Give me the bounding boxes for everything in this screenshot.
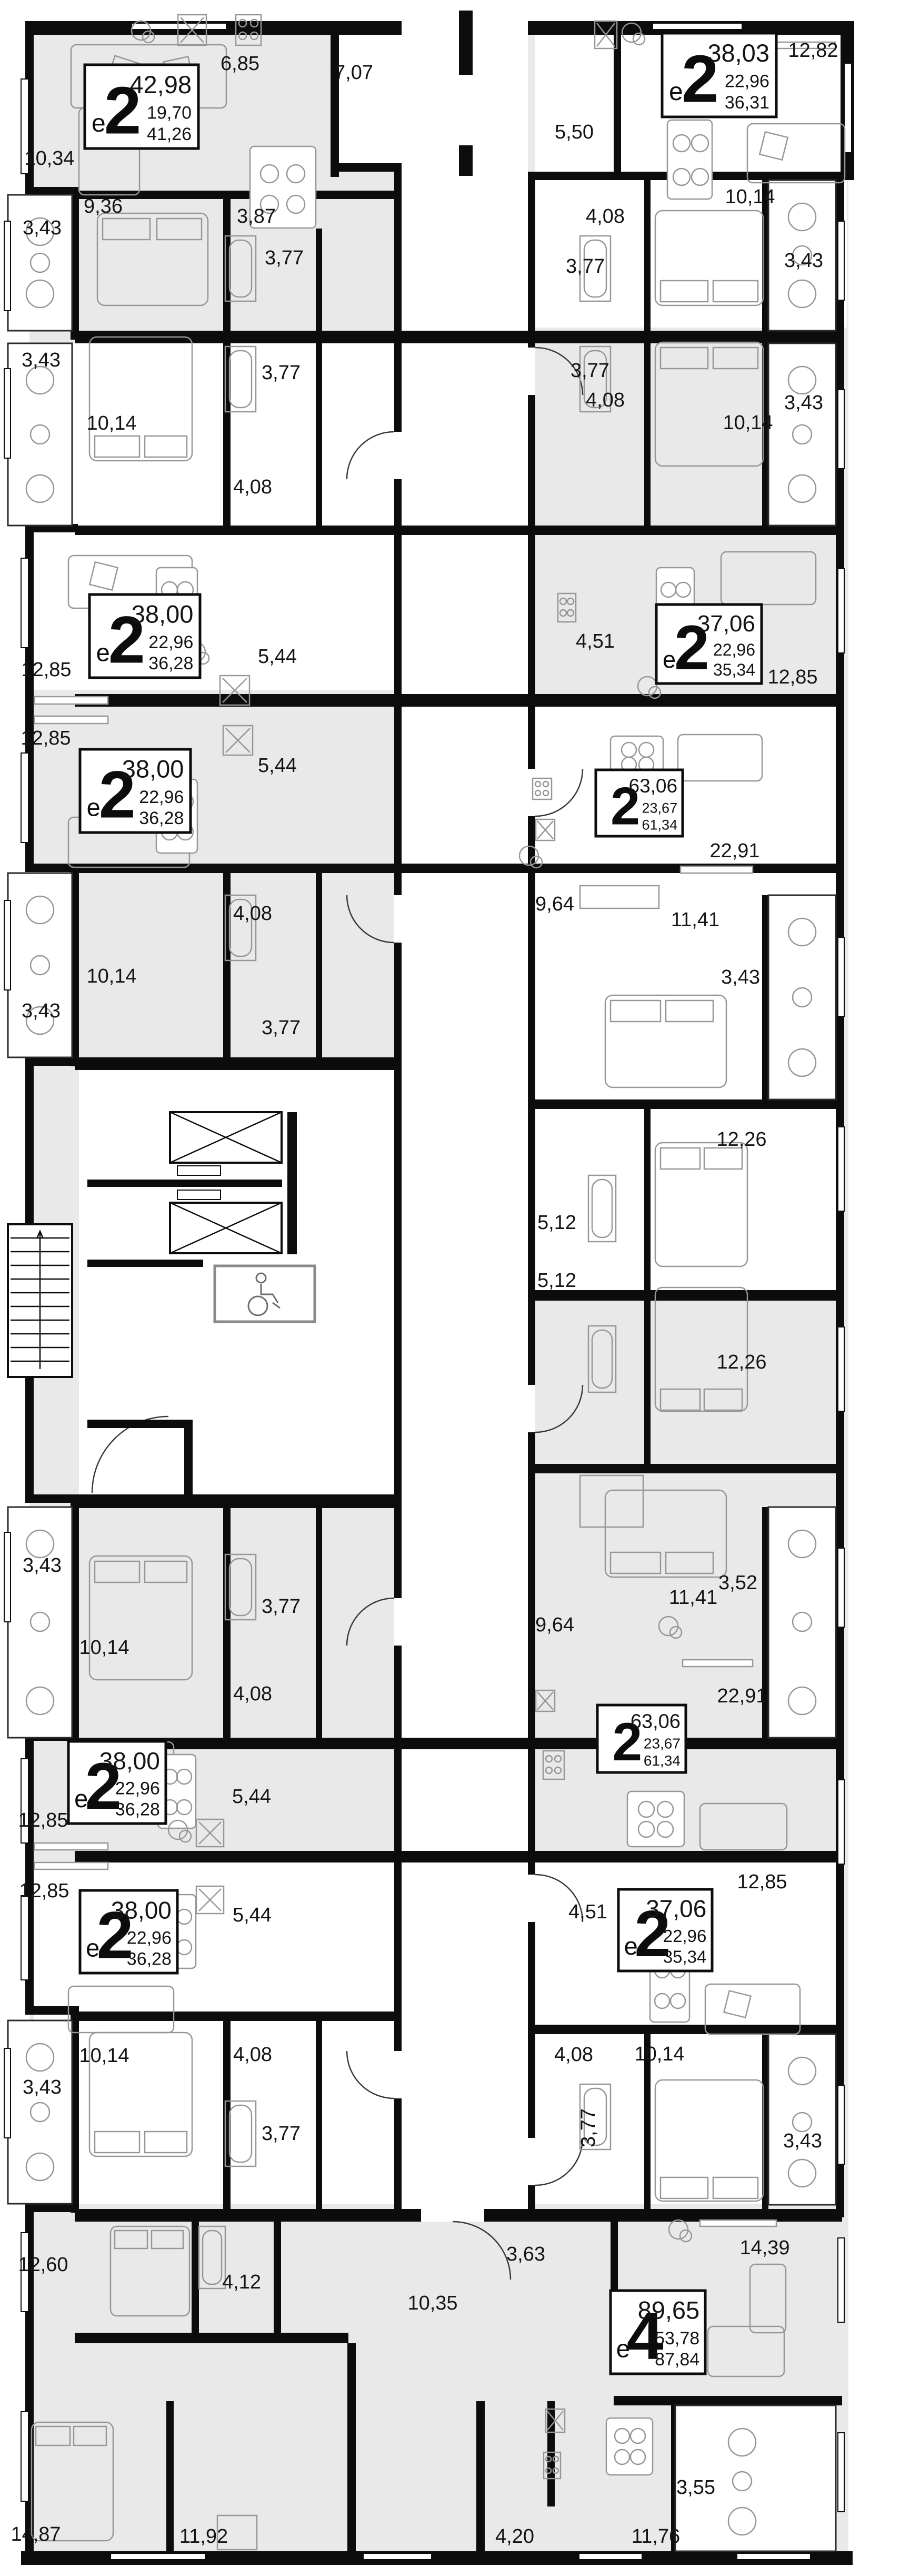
- dining-table-icon: [627, 1791, 684, 1847]
- dimension-label: 4,08: [233, 2044, 272, 2066]
- dimension-label: 4,51: [568, 1901, 607, 1923]
- apartment-area: 63,06: [631, 1711, 681, 1733]
- dimension-label: 12,26: [716, 1128, 766, 1151]
- dimension-label: 10,14: [79, 1637, 129, 1659]
- dimension-label: 9,64: [535, 1614, 574, 1636]
- dimension-label: 11,92: [179, 2525, 228, 2548]
- apartment-3800-1-floor: [34, 343, 394, 690]
- room-707-floor: [339, 35, 402, 167]
- balcony: [8, 195, 72, 331]
- dimension-label: 5,44: [233, 1904, 272, 1926]
- dimension-label: 3,43: [23, 1554, 62, 1577]
- balcony: [768, 895, 836, 1099]
- apartment-living-area: 22,96: [115, 1779, 160, 1799]
- dimension-label: 4,08: [586, 389, 625, 411]
- dimension-label: 3,77: [566, 255, 605, 278]
- dimension-label: 9,36: [84, 195, 123, 217]
- apartment-living-area: 53,78: [655, 2329, 699, 2349]
- dimension-label: 12,85: [767, 666, 817, 688]
- apartment-label: е237,0622,9635,34: [656, 605, 762, 683]
- apartment-living-area: 22,96: [725, 72, 769, 92]
- floor-plan-page: 10,346,857,075,5012,829,363,433,873,773,…: [0, 0, 910, 2576]
- dimension-label: 6,85: [221, 53, 259, 75]
- dining-table-icon: [606, 2418, 653, 2475]
- dimension-label: 12,85: [21, 659, 71, 681]
- apartment-label: е238,0022,9636,28: [80, 749, 191, 833]
- apartment-area: 89,65: [638, 2296, 700, 2324]
- dimension-label: 7,07: [334, 62, 373, 84]
- dining-table-icon: [667, 120, 712, 199]
- tv-icon: [34, 716, 108, 724]
- dimension-label: 10,14: [725, 186, 775, 208]
- apartment-type-prefix: е: [92, 110, 106, 137]
- apartment-total-area: 61,34: [644, 1752, 681, 1769]
- dimension-label: 12,85: [19, 1880, 69, 1902]
- apartment-area: 37,06: [646, 1895, 706, 1923]
- dimension-label: 3,63: [506, 2243, 545, 2265]
- dimension-label: 11,41: [669, 1587, 717, 1609]
- apartment-label: е238,0022,9636,28: [80, 1890, 177, 1973]
- dimension-label: 5,12: [537, 1270, 576, 1292]
- apartment-label: е238,0022,9636,28: [89, 595, 200, 678]
- dimension-label: 3,52: [718, 1572, 757, 1594]
- tv-icon: [683, 1660, 753, 1667]
- tv-icon: [34, 697, 108, 704]
- floor-plan: 10,346,857,075,5012,829,363,433,873,773,…: [0, 0, 910, 2576]
- apartment-living-area: 23,67: [642, 800, 678, 816]
- dimension-label: 3,55: [676, 2476, 715, 2499]
- apartment-total-area: 61,34: [642, 817, 678, 833]
- dimension-label: 12,82: [788, 39, 838, 62]
- apartment-total-area: 87,84: [655, 2350, 699, 2370]
- apartment-label: е237,0622,9635,34: [618, 1889, 712, 1971]
- apartment-area: 38,00: [122, 755, 184, 783]
- apartment-total-area: 36,28: [115, 1799, 160, 1819]
- dimension-label: 10,14: [86, 965, 136, 987]
- dimension-label: 12,85: [737, 1871, 787, 1893]
- dimension-label: 3,43: [784, 250, 823, 272]
- dimension-label: 3,87: [237, 205, 276, 227]
- dimension-label: 12,85: [18, 1809, 68, 1831]
- tv-icon: [34, 1862, 108, 1869]
- balcony: [768, 2034, 836, 2205]
- apartment-total-area: 36,28: [127, 1949, 172, 1969]
- dimension-label: 4,51: [576, 630, 615, 652]
- apartment-total-area: 36,28: [139, 808, 184, 828]
- dimension-label: 4,08: [233, 903, 272, 925]
- apartment-total-area: 36,31: [725, 93, 769, 113]
- tv-icon: [681, 866, 753, 873]
- dimension-label: 14,39: [739, 2237, 789, 2259]
- dimension-label: 3,43: [783, 2130, 822, 2152]
- apartment-living-area: 22,96: [148, 632, 193, 652]
- apartment-label: е238,0022,9636,28: [68, 1741, 166, 1824]
- dimension-label: 14,87: [11, 2523, 61, 2545]
- dimension-label: 3,43: [23, 2076, 62, 2098]
- dimension-label: 3,43: [23, 217, 62, 239]
- apartment-living-area: 22,96: [139, 787, 184, 807]
- dimension-label: 3,77: [262, 2123, 301, 2145]
- apartment-living-area: 23,67: [644, 1736, 681, 1752]
- dimension-label: 10,35: [407, 2292, 457, 2314]
- dimension-label: 10,14: [634, 2043, 684, 2065]
- dimension-label: 5,44: [258, 646, 297, 668]
- dimension-label: 3,77: [571, 360, 609, 382]
- dimension-label: 10,14: [723, 412, 773, 434]
- dimension-label: 4,08: [554, 2044, 593, 2066]
- dimension-label: 11,76: [632, 2525, 680, 2548]
- balcony: [768, 343, 836, 526]
- apartment-area: 38,00: [99, 1747, 160, 1775]
- dimension-label: 3,43: [22, 349, 61, 371]
- dimension-label: 5,44: [232, 1786, 271, 1808]
- dimension-label: 12,85: [21, 727, 71, 749]
- dimension-label: 4,20: [495, 2525, 534, 2548]
- apartment-total-area: 35,34: [713, 660, 755, 679]
- apartment-area: 38,00: [132, 600, 194, 628]
- building-base: [29, 21, 848, 2555]
- apartment-living-area: 22,96: [713, 640, 755, 659]
- dimension-label: 12,60: [18, 2254, 68, 2276]
- dimension-label: 3,43: [784, 392, 823, 414]
- dimension-label: 3,77: [262, 362, 301, 384]
- dimension-label: 5,50: [555, 121, 594, 143]
- apartment-label: 263,0623,6761,34: [597, 1705, 686, 1772]
- apartment-total-area: 35,34: [663, 1947, 707, 1967]
- balcony: [768, 1507, 836, 1738]
- dimension-label: 5,44: [258, 755, 297, 777]
- dimension-label: 4,08: [233, 476, 272, 498]
- dimension-label: 9,64: [535, 893, 574, 915]
- apartment-label: е242,9819,7041,26: [85, 65, 198, 148]
- apartment-area: 38,03: [707, 39, 769, 67]
- dimension-label: 4,08: [233, 1683, 272, 1705]
- dimension-label: 3,43: [22, 1000, 61, 1022]
- dimension-label: 22,91: [717, 1685, 767, 1707]
- dimension-label: 3,77: [262, 1017, 301, 1039]
- dimension-label: 4,08: [586, 205, 625, 227]
- dimension-label: 3,77: [577, 2108, 599, 2147]
- dimension-label: 3,77: [265, 247, 304, 269]
- dimension-label: 12,26: [716, 1351, 766, 1373]
- dimension-label: 10,14: [79, 2045, 129, 2067]
- dimension-label: 10,34: [24, 147, 74, 170]
- apartment-area: 63,06: [629, 775, 678, 797]
- dimension-label: 4,12: [222, 2271, 261, 2293]
- apartment-area: 37,06: [697, 611, 755, 637]
- apartment-label: е238,0322,9636,31: [662, 33, 776, 117]
- dimension-label: 10,14: [86, 412, 136, 434]
- apartment-type-prefix: е: [669, 78, 683, 106]
- dimension-label: 3,77: [262, 1596, 301, 1618]
- apartment-living-area: 22,96: [663, 1926, 707, 1946]
- balcony: [8, 2020, 72, 2204]
- tv-icon: [34, 1843, 108, 1850]
- dimension-label: 3,43: [721, 966, 760, 988]
- dimension-label: 11,41: [671, 909, 719, 931]
- apartment-label: 263,0623,6761,34: [596, 770, 683, 836]
- apartment-living-area: 22,96: [127, 1928, 172, 1948]
- dimension-label: 5,12: [537, 1212, 576, 1234]
- tv-icon: [700, 2220, 776, 2226]
- apartment-area: 42,98: [129, 71, 192, 98]
- balcony: [8, 873, 72, 1057]
- apartment-living-area: 19,70: [147, 103, 192, 123]
- apartment-total-area: 41,26: [147, 124, 192, 144]
- apartment-total-area: 36,28: [148, 653, 193, 673]
- corridor-floor: [402, 21, 528, 2209]
- apartment-area: 38,00: [111, 1896, 172, 1924]
- dimension-label: 22,91: [709, 840, 759, 862]
- balcony: [8, 1507, 72, 1738]
- apartment-label: е489,6553,7887,84: [611, 2291, 705, 2374]
